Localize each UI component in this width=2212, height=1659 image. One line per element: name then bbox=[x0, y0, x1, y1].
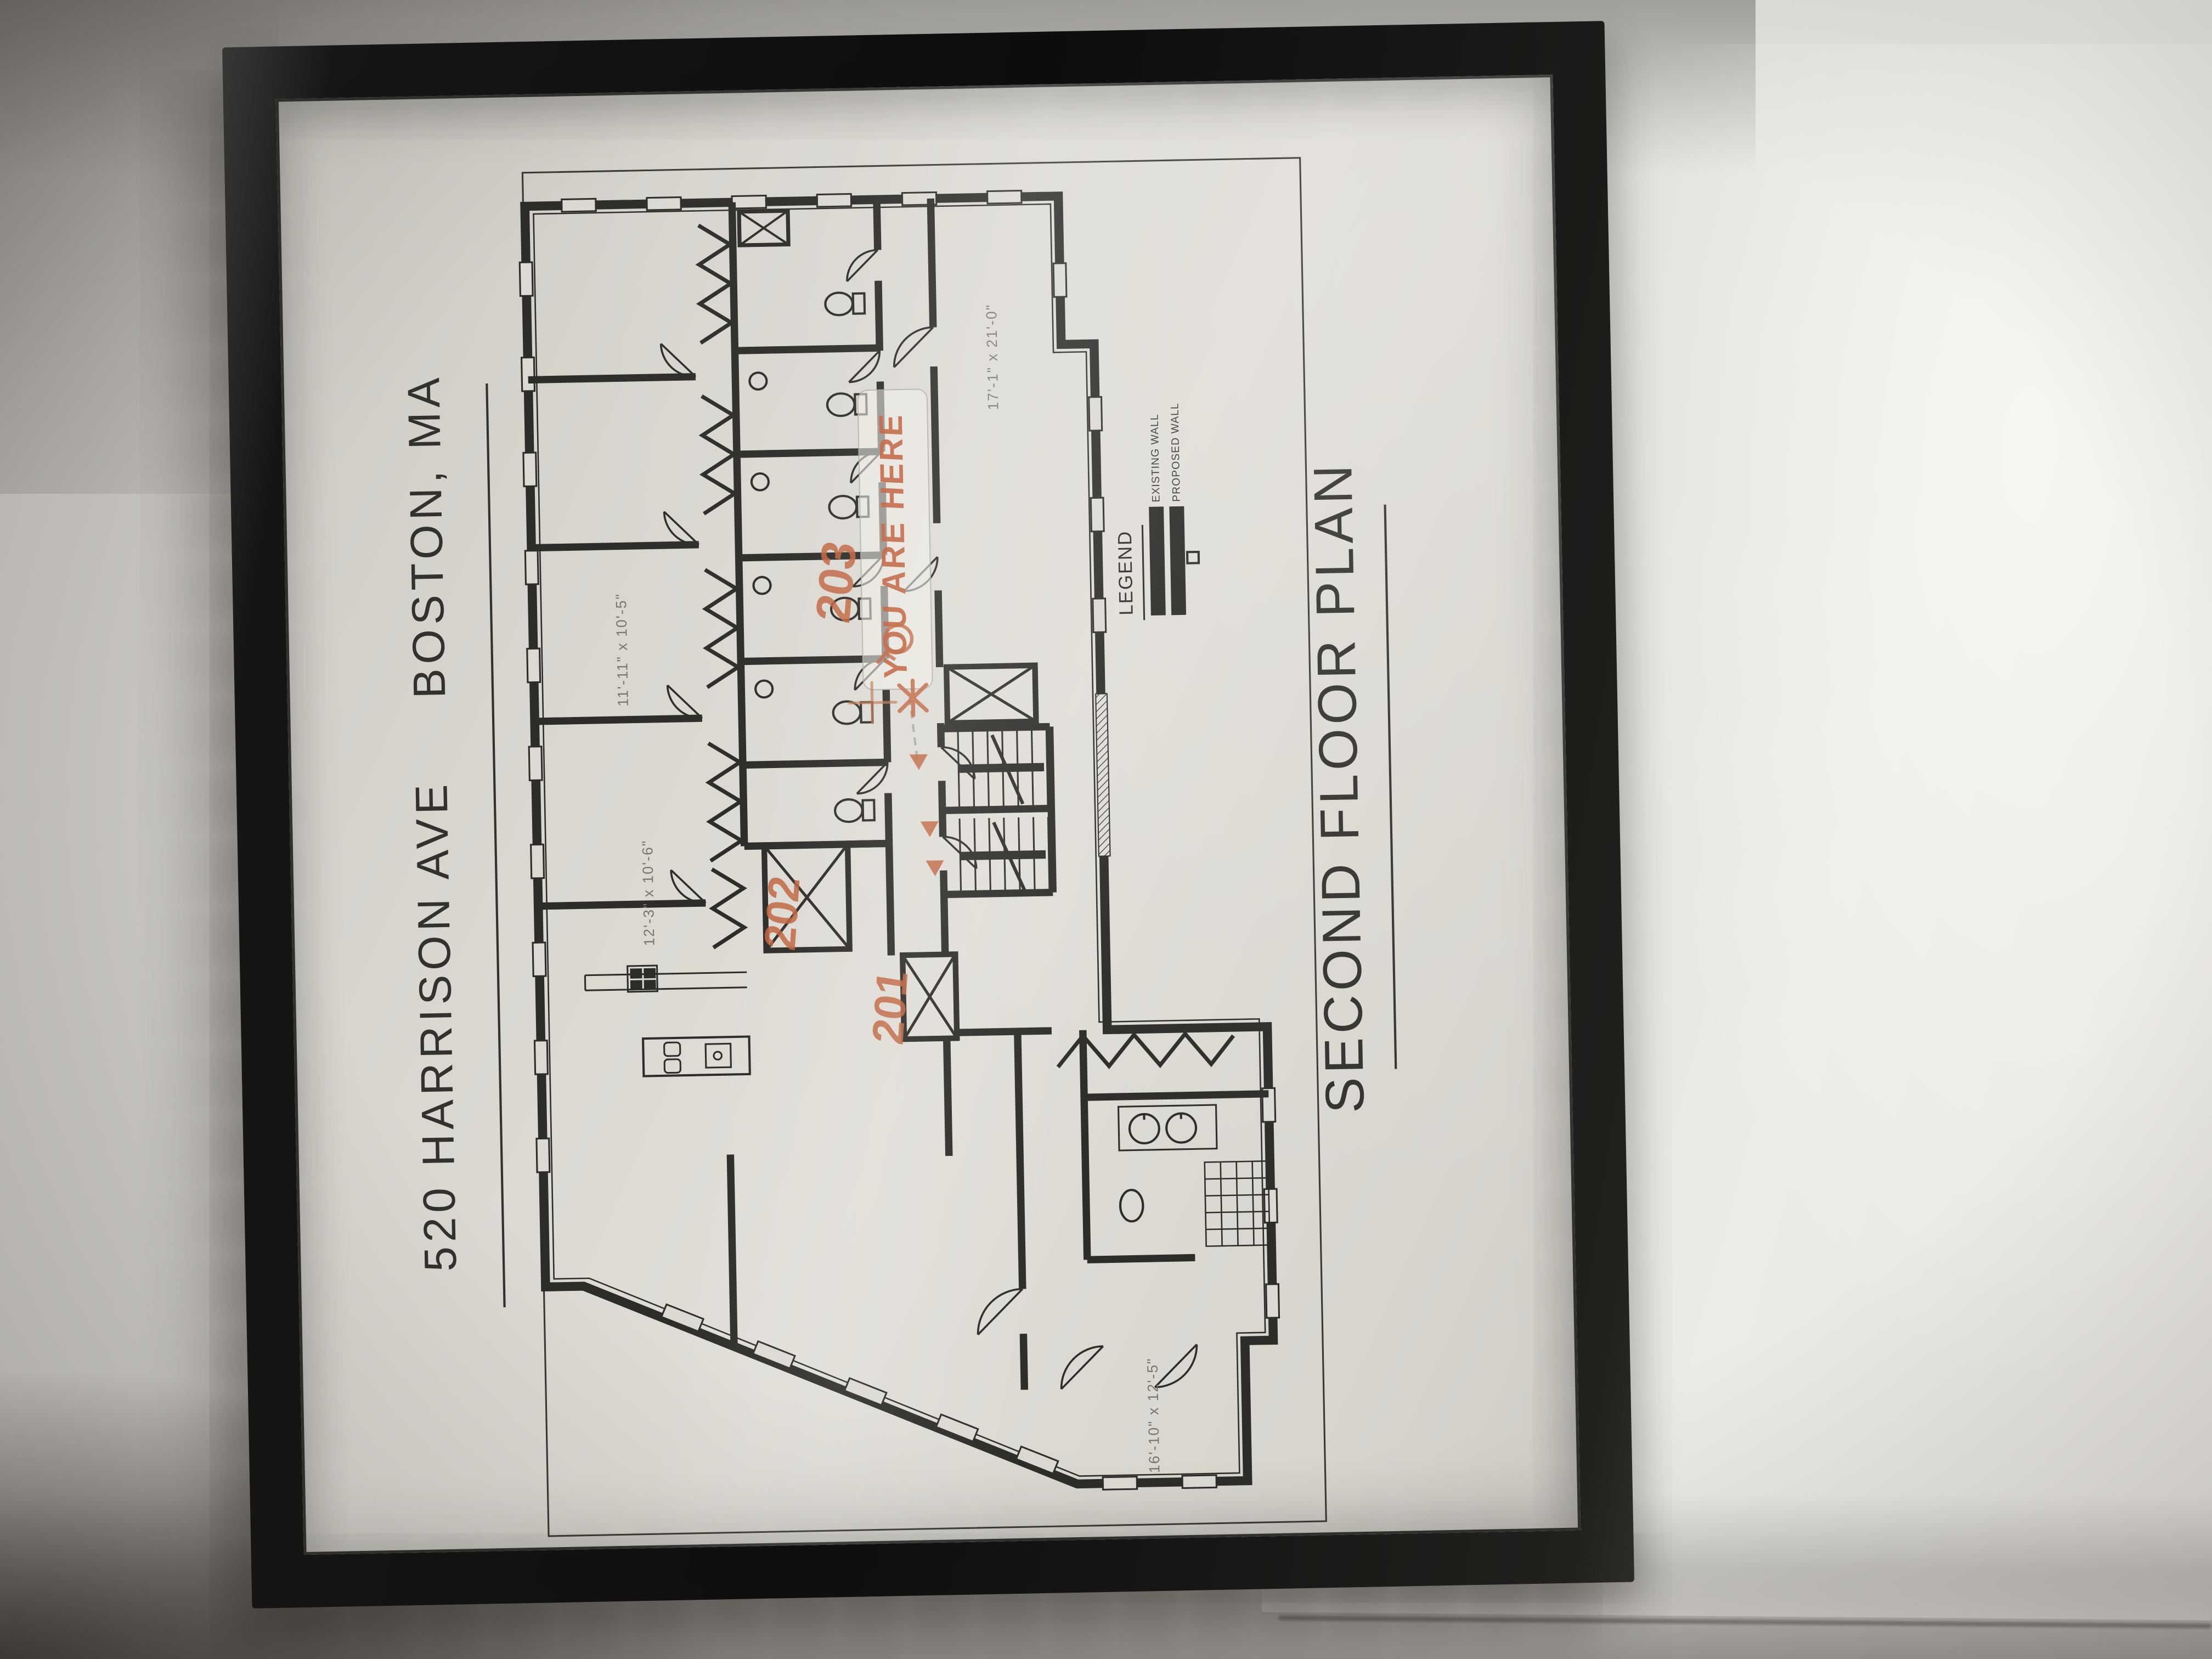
dim-wing-room: 16'-10" x 12'-5" bbox=[1144, 1357, 1163, 1473]
photo-scene: { "scene": { "wall_color": "#d6d3cf", "f… bbox=[0, 0, 2212, 1659]
stove-icon bbox=[628, 966, 658, 992]
you-are-here-label: YOU ARE HERE bbox=[872, 412, 914, 680]
floor-plan-drawing: 520 HARRISON AVE BOSTON, MA SECOND FLOOR… bbox=[276, 75, 1581, 1555]
picture-frame: 520 HARRISON AVE BOSTON, MA SECOND FLOOR… bbox=[222, 21, 1634, 1609]
hatched-wall bbox=[1096, 693, 1110, 856]
legend-proposed-label: PROPOSED WALL bbox=[1169, 403, 1183, 502]
unit-203-label: 203 bbox=[805, 537, 866, 627]
dim-bedroom-b: 12'-3" x 10'-6" bbox=[639, 839, 658, 946]
dim-great-room: 17'-1" x 21'-0" bbox=[983, 303, 1002, 410]
legend-title: LEGEND bbox=[1114, 530, 1137, 616]
floor-plan-sheet: 520 HARRISON AVE BOSTON, MA SECOND FLOOR… bbox=[276, 75, 1581, 1555]
tile-floor bbox=[1205, 1161, 1270, 1246]
address-title: 520 HARRISON AVE bbox=[407, 780, 466, 1272]
legend-existing-label: EXISTING WALL bbox=[1148, 414, 1162, 503]
unit-202-label: 202 bbox=[755, 873, 810, 953]
legend: LEGEND EXISTING WALL PROPOSED WALL bbox=[1111, 402, 1200, 620]
door-swings bbox=[659, 244, 1198, 1396]
legend-proposed-wall-swatch bbox=[1169, 506, 1186, 616]
dim-bedroom-a: 11'-11" x 10'-5" bbox=[613, 593, 631, 707]
city-title: BOSTON, MA bbox=[399, 373, 455, 699]
wing-bathroom bbox=[1119, 1104, 1270, 1248]
legend-underline bbox=[1142, 525, 1144, 620]
kitchen-fixtures bbox=[585, 964, 750, 1077]
legend-existing-wall-swatch bbox=[1149, 506, 1166, 616]
plan-title-underline bbox=[1385, 505, 1396, 1069]
plan-title: SECOND FLOOR PLAN bbox=[1302, 461, 1375, 1114]
legend-proposed-wall-tag bbox=[1187, 552, 1199, 563]
title-underline bbox=[487, 383, 504, 1307]
you-are-here-tape: YOU ARE HERE bbox=[857, 389, 933, 690]
exterior-walls bbox=[525, 193, 1276, 1494]
wall-right-highlight bbox=[1607, 44, 2212, 1415]
unit-201-label: 201 bbox=[863, 967, 917, 1047]
interior-walls bbox=[525, 193, 1274, 1399]
kitchen-island bbox=[643, 1036, 750, 1076]
